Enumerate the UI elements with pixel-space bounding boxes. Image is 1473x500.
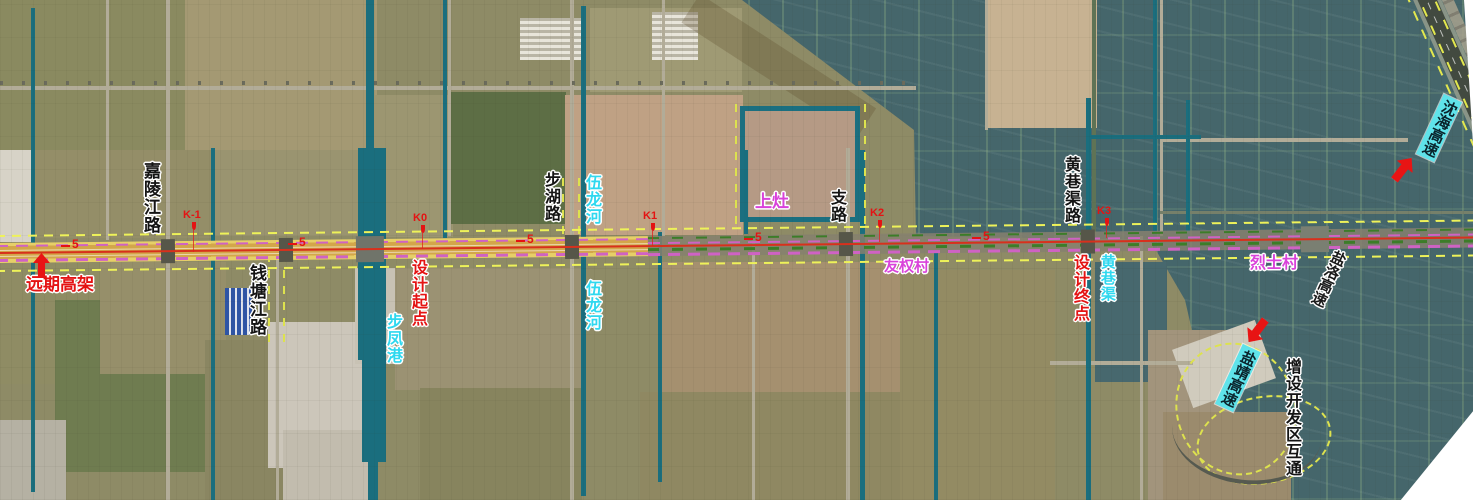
km-marker-k1: K1 [643,211,657,223]
chainage-label: 5 [299,236,306,249]
bufeng-port-canal [362,358,386,462]
chainage-dash [744,238,753,240]
regulation-dash-line [578,178,580,234]
km-tick [878,220,882,228]
village-buildings-row [0,81,916,85]
canal [1186,100,1190,248]
label-interchange-note: 增设开发区互通 [1282,358,1299,477]
km-tick [192,222,196,230]
terrain-patch [185,0,377,155]
label-huangxiang-canal: 黄巷渠 [1099,254,1115,302]
bufeng-port-canal [368,460,378,500]
label-buhu-road: 步湖路 [541,171,558,222]
village-road [985,0,988,130]
canal [934,250,938,500]
chainage-dash [516,240,525,242]
village-road [662,0,665,236]
chainage-label: 5 [527,233,534,246]
km-leader-line [879,228,880,242]
village-road [1160,0,1163,236]
km-tick [421,225,425,233]
regulation-dash-line [735,104,737,224]
label-bufeng-port: 步凤港 [383,313,400,364]
village-road [1140,236,1143,500]
chainage-dash [61,245,70,247]
regulation-dash-line [283,258,285,342]
label-huangxiangqu-road: 黄巷渠路 [1061,156,1078,224]
chainage-label: 5 [72,238,79,251]
bufeng-port-canal [366,0,374,150]
label-qiantangjiang-road: 钱塘江路 [247,264,265,336]
village-road [448,0,451,236]
km-marker-k-1: K-1 [183,210,201,222]
chainage-dash [972,237,981,239]
chainage-label: 5 [755,231,762,244]
terrain-patch [985,0,1097,128]
canal [658,232,662,482]
regulation-dash-line [562,178,564,234]
canal [211,148,215,500]
canal [744,150,748,234]
regulation-dash-line [268,258,270,342]
label-future-viaduct: 远期高架 [26,276,94,294]
canal [1091,135,1201,139]
satellite-map[interactable]: 嘉陵江路 钱塘江路 远期高架 设计起点 步凤港 步湖路 伍龙河 伍龙河 上灶 支… [0,0,1473,500]
label-design-start: 设计起点 [408,259,425,327]
terrain-patch [420,388,582,500]
chainage-dash [288,243,297,245]
km-marker-k0: K0 [413,213,427,225]
label-design-end: 设计终点 [1070,254,1087,322]
huangxiangqu-road-line [1092,0,1096,236]
tree-lined-road [1160,211,1473,214]
village-road [752,236,755,500]
zhi-road-line [846,148,850,500]
terrain-patch [34,150,212,238]
km-tick [651,223,655,231]
km-leader-line [1106,226,1107,238]
label-zhi-road: 支路 [827,189,844,223]
label-wulong-river-south: 伍龙河 [582,280,599,331]
label-lieshi-village: 烈士村 [1250,256,1298,273]
label-shangzao-village: 上灶 [755,193,789,211]
km-leader-line [652,231,653,246]
qiantangjiang-road-line [276,256,279,500]
km-leader-line [193,230,194,252]
label-jialingjiang-road: 嘉陵江路 [141,162,159,234]
label-youquan-village: 友权村 [884,259,929,275]
village-road [106,0,109,240]
km-marker-k2: K2 [870,208,884,220]
village-road [0,86,916,90]
km-marker-k3: K3 [1097,206,1111,218]
construction-area [283,430,369,500]
terrain-patch [0,150,34,242]
terrain-patch [660,262,902,394]
terrain-patch [900,270,1055,500]
canal [1153,0,1157,248]
km-tick [1105,218,1109,226]
km-leader-line [422,233,423,248]
canal [443,0,447,238]
terrain-patch [212,150,362,236]
regulation-dash-line [864,104,866,224]
chainage-label: 5 [983,230,990,243]
village-road [1050,361,1193,365]
label-wulong-river-north: 伍龙河 [582,174,599,225]
